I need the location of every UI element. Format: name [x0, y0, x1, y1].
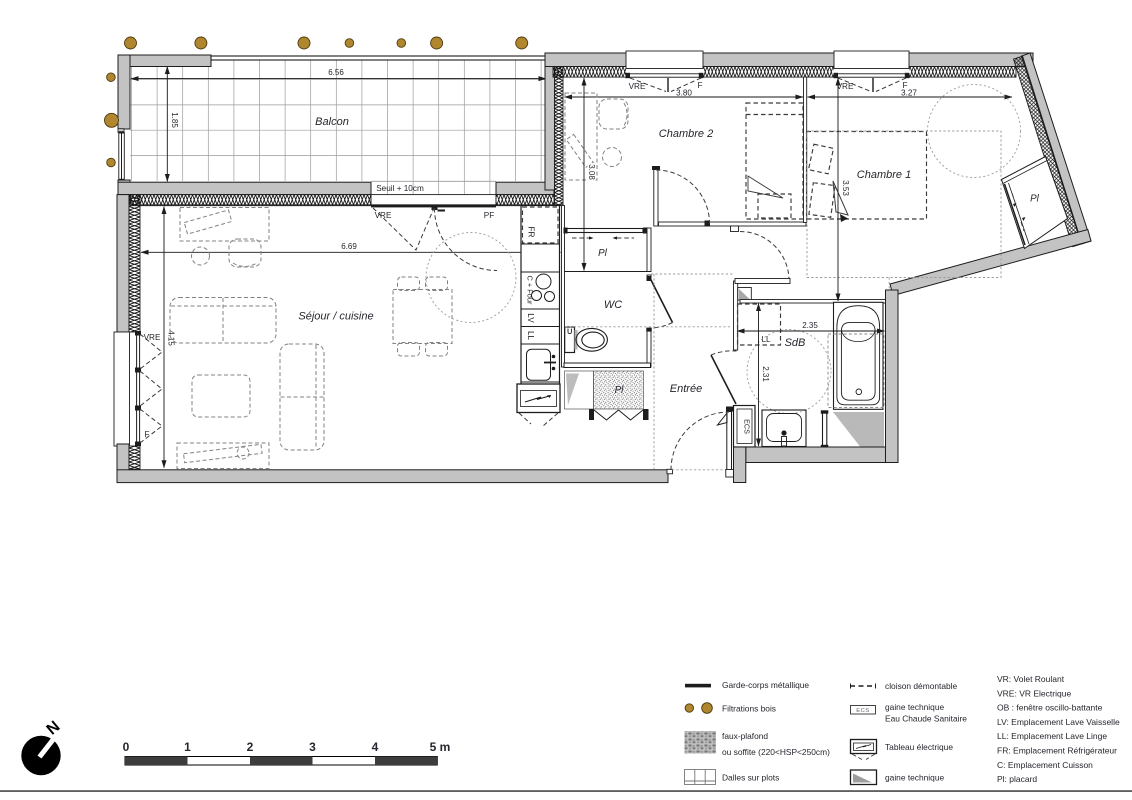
svg-text:FR: Emplacement Réfrigérateur: FR: Emplacement Réfrigérateur — [997, 746, 1117, 756]
svg-text:ECS: ECS — [743, 419, 752, 434]
svg-text:Pl: Pl — [1030, 194, 1040, 205]
svg-text:F: F — [144, 430, 149, 439]
svg-text:1.85: 1.85 — [170, 112, 179, 128]
svg-text:faux-plafond: faux-plafond — [722, 731, 768, 741]
svg-text:Seuil + 10cm: Seuil + 10cm — [376, 184, 424, 193]
svg-text:WC: WC — [604, 299, 622, 311]
svg-text:2.35: 2.35 — [802, 321, 818, 330]
svg-text:3.27: 3.27 — [901, 89, 917, 98]
svg-text:SdB: SdB — [785, 337, 806, 349]
svg-text:3.08: 3.08 — [587, 164, 596, 180]
svg-text:Eau Chaude Sanitaire: Eau Chaude Sanitaire — [885, 714, 967, 724]
svg-text:Chambre 1: Chambre 1 — [857, 169, 911, 181]
svg-text:OB : fenêtre oscillo-battante: OB : fenêtre oscillo-battante — [997, 703, 1103, 713]
svg-text:LL: LL — [526, 331, 535, 341]
svg-text:3: 3 — [309, 740, 316, 754]
svg-text:3.80: 3.80 — [676, 89, 692, 98]
svg-text:VR: Volet Roulant: VR: Volet Roulant — [997, 674, 1065, 684]
svg-text:Séjour / cuisine: Séjour / cuisine — [298, 311, 373, 323]
svg-text:Entrée: Entrée — [670, 383, 702, 395]
svg-text:VRE: VRE — [837, 82, 854, 91]
svg-text:LV: Emplacement Lave Vaisselle: LV: Emplacement Lave Vaisselle — [997, 717, 1120, 727]
svg-text:F: F — [697, 81, 702, 90]
svg-text:6.56: 6.56 — [328, 68, 344, 77]
svg-text:VRE: VRE — [144, 333, 161, 342]
svg-text:2: 2 — [247, 740, 254, 754]
svg-text:Tableau électrique: Tableau électrique — [885, 742, 953, 752]
svg-text:Garde-corps métallique: Garde-corps métallique — [722, 680, 809, 690]
svg-text:4: 4 — [372, 740, 379, 754]
svg-text:Dalles sur plots: Dalles sur plots — [722, 773, 779, 783]
svg-text:Pl: Pl — [615, 385, 625, 396]
svg-text:ou soffite (220<HSP<250cm): ou soffite (220<HSP<250cm) — [722, 747, 830, 757]
svg-text:0: 0 — [123, 740, 130, 754]
svg-text:gaine technique: gaine technique — [885, 773, 944, 783]
svg-text:C: Emplacement Cuisson: C: Emplacement Cuisson — [997, 760, 1093, 770]
svg-text:Pl: Pl — [598, 248, 608, 259]
svg-text:2.31: 2.31 — [761, 366, 770, 382]
svg-text:cloison démontable: cloison démontable — [885, 681, 958, 691]
svg-text:VRE: VR Electrique: VRE: VR Electrique — [997, 688, 1071, 698]
svg-text:C + Four: C + Four — [526, 276, 535, 305]
svg-text:1: 1 — [184, 740, 191, 754]
svg-text:gaine technique: gaine technique — [885, 702, 944, 712]
svg-text:5 m: 5 m — [430, 740, 451, 754]
svg-text:VRE: VRE — [375, 211, 392, 220]
svg-text:Filtrations bois: Filtrations bois — [722, 704, 776, 714]
svg-text:PF: PF — [484, 211, 494, 220]
svg-text:ECS: ECS — [856, 708, 869, 714]
svg-text:Chambre 2: Chambre 2 — [659, 128, 713, 140]
svg-text:6.69: 6.69 — [341, 242, 357, 251]
svg-text:VRE: VRE — [629, 82, 646, 91]
svg-text:FR: FR — [527, 227, 536, 238]
svg-text:LV: LV — [526, 313, 535, 323]
svg-text:Pl: placard: Pl: placard — [997, 774, 1037, 784]
svg-text:LL: Emplacement Lave Linge: LL: Emplacement Lave Linge — [997, 731, 1107, 741]
svg-text:Balcon: Balcon — [315, 116, 349, 128]
svg-text:3.53: 3.53 — [841, 180, 850, 196]
